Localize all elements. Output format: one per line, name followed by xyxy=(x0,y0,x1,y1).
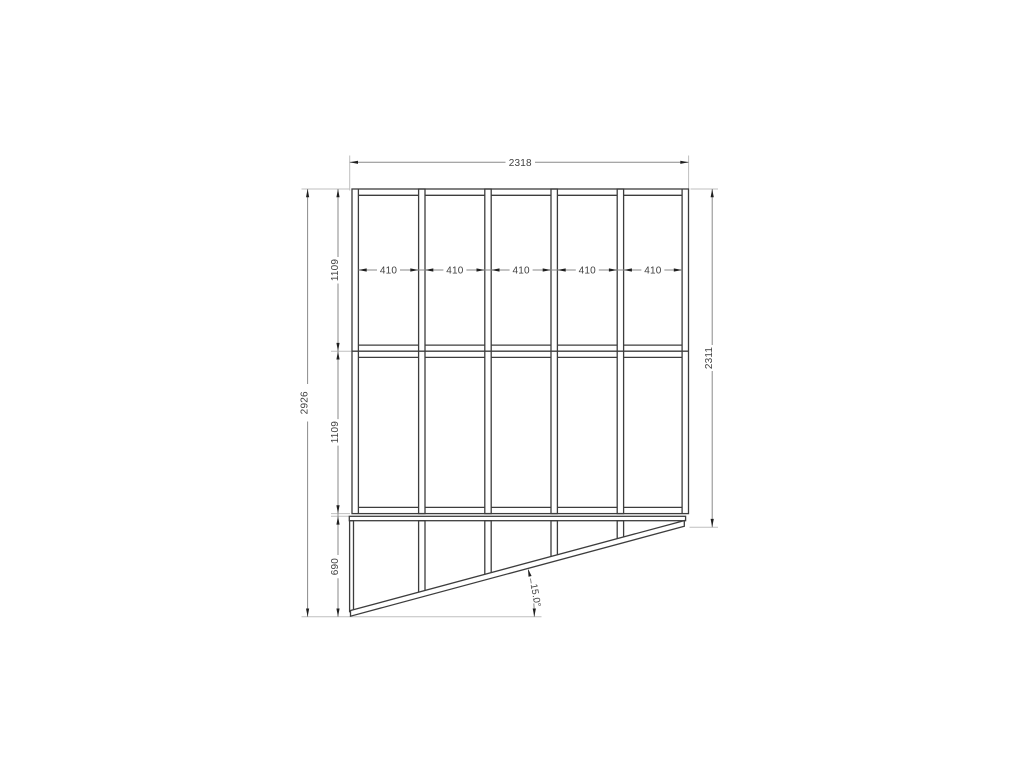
svg-text:1109: 1109 xyxy=(330,259,341,282)
svg-text:410: 410 xyxy=(512,266,530,277)
svg-text:2926: 2926 xyxy=(300,391,311,414)
svg-text:410: 410 xyxy=(380,266,398,277)
svg-text:690: 690 xyxy=(330,558,341,576)
svg-text:410: 410 xyxy=(446,266,464,277)
svg-text:2311: 2311 xyxy=(704,347,715,370)
svg-text:410: 410 xyxy=(644,266,662,277)
svg-text:1109: 1109 xyxy=(330,421,341,444)
svg-text:410: 410 xyxy=(579,266,597,277)
svg-text:2318: 2318 xyxy=(509,158,532,169)
